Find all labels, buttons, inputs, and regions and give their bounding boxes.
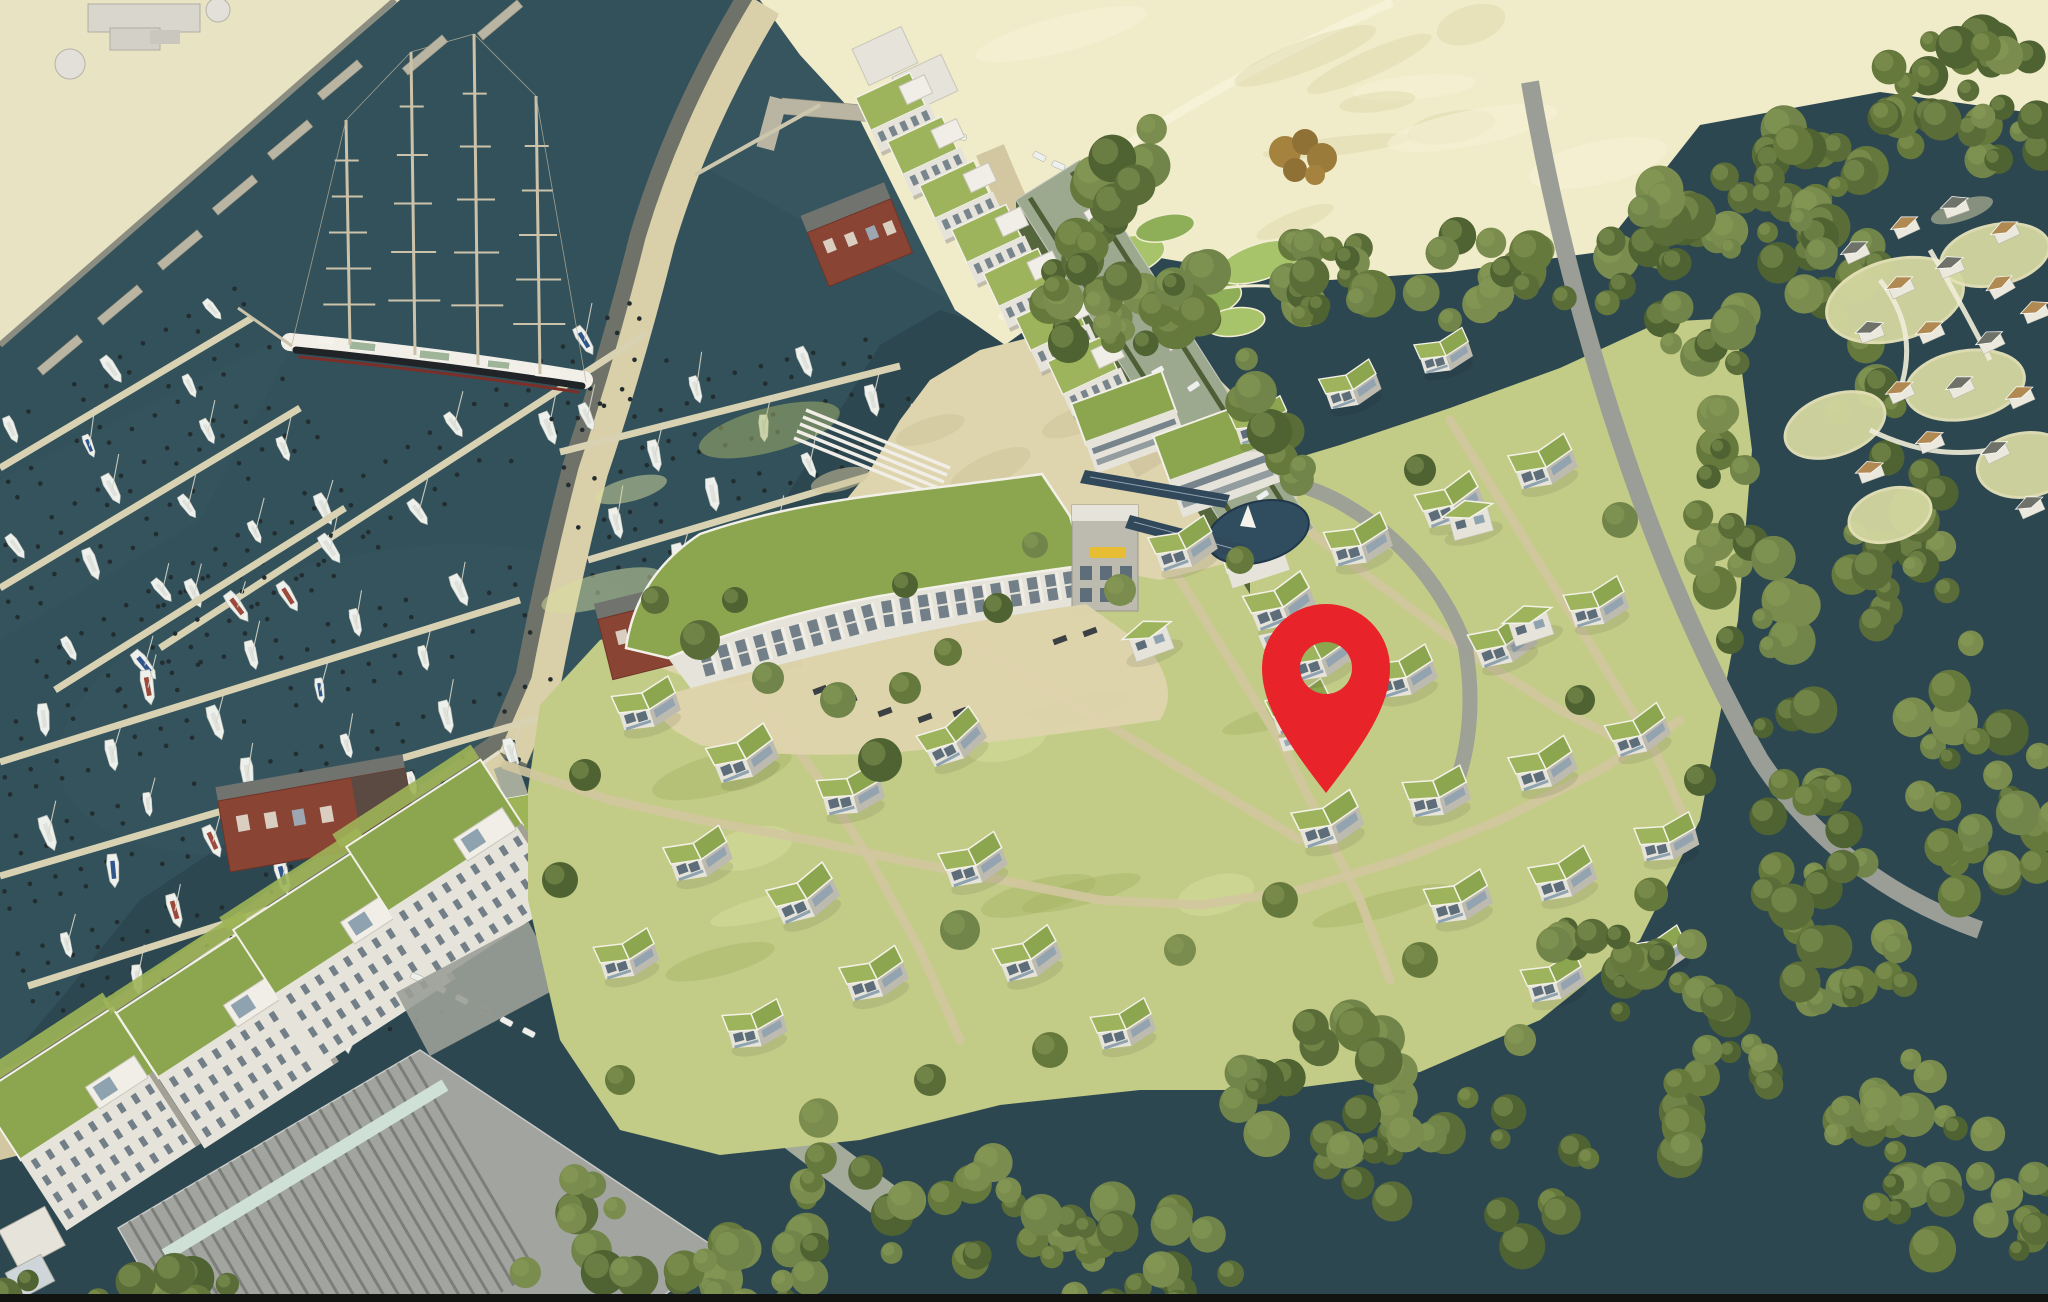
scene-canvas xyxy=(0,0,2048,1302)
bottom-border xyxy=(0,1294,2048,1302)
hotel-sign xyxy=(1090,547,1126,558)
aerial-site-plan xyxy=(0,0,2048,1302)
